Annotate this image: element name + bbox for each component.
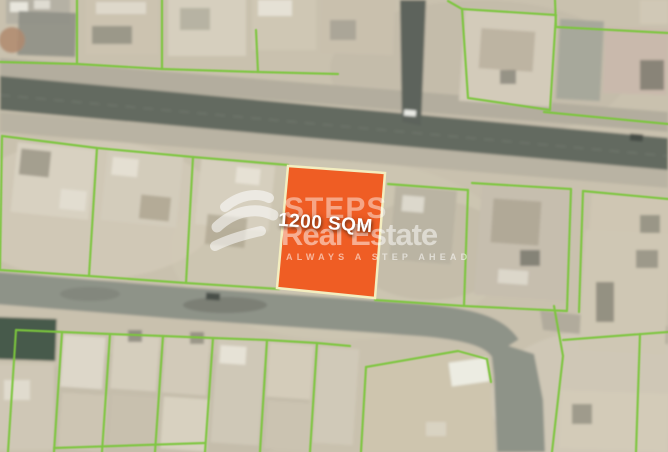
car: [404, 109, 416, 116]
listing-image: STEPS Real Estate ALWAYS A STEP AHEAD 12…: [0, 0, 668, 452]
car: [206, 293, 220, 301]
car: [630, 133, 644, 141]
